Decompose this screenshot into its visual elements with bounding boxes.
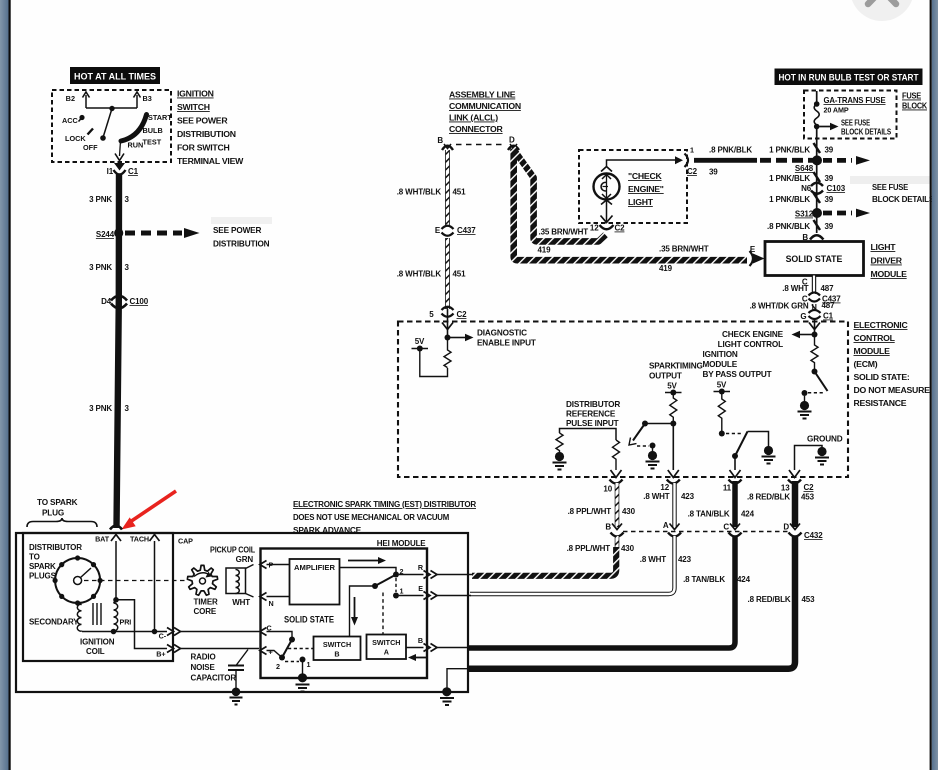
svg-text:SOLID STATE: SOLID STATE	[284, 615, 334, 625]
svg-text:39: 39	[825, 174, 834, 183]
svg-text:ASSEMBLY LINE: ASSEMBLY LINE	[449, 90, 516, 100]
svg-text:REFERENCE: REFERENCE	[566, 410, 616, 419]
svg-text:.8 PNK/BLK: .8 PNK/BLK	[767, 222, 810, 231]
svg-text:.8 RED/BLK: .8 RED/BLK	[748, 595, 791, 604]
svg-text:TO SPARK: TO SPARK	[37, 498, 78, 507]
svg-text:1: 1	[690, 146, 694, 155]
svg-text:C2: C2	[457, 310, 468, 319]
svg-text:DISTRIBUTOR: DISTRIBUTOR	[29, 543, 82, 552]
svg-text:DISTRIBUTION: DISTRIBUTION	[213, 240, 270, 249]
svg-text:CHECK ENGINE: CHECK ENGINE	[722, 330, 784, 339]
svg-text:C2: C2	[804, 483, 815, 492]
svg-text:487: 487	[821, 284, 835, 293]
svg-text:LOCK: LOCK	[65, 134, 86, 143]
svg-text:10: 10	[603, 485, 612, 494]
svg-text:RADIO: RADIO	[191, 653, 216, 662]
svg-text:.8 RED/BLK: .8 RED/BLK	[747, 493, 790, 502]
svg-text:SWITCH: SWITCH	[177, 102, 210, 112]
svg-text:TO: TO	[29, 553, 40, 562]
svg-text:MODULE: MODULE	[703, 360, 738, 369]
svg-text:ACC: ACC	[62, 116, 79, 125]
svg-text:39: 39	[709, 168, 718, 177]
svg-text:ENGINE": ENGINE"	[628, 184, 664, 194]
svg-text:GROUND: GROUND	[807, 435, 843, 444]
svg-text:TERMINAL VIEW: TERMINAL VIEW	[177, 156, 244, 166]
svg-text:419: 419	[538, 246, 552, 255]
svg-text:BLOCK DETAILS: BLOCK DETAILS	[841, 128, 892, 137]
svg-text:TIMING: TIMING	[675, 362, 703, 371]
svg-text:CAPACITOR: CAPACITOR	[191, 674, 237, 683]
svg-text:.8 PNK/BLK: .8 PNK/BLK	[709, 146, 752, 155]
svg-text:FOR SWITCH: FOR SWITCH	[177, 143, 230, 153]
svg-text:419: 419	[659, 264, 673, 273]
svg-text:N6: N6	[801, 184, 812, 193]
svg-text:11: 11	[723, 484, 732, 493]
svg-text:LIGHT: LIGHT	[871, 242, 897, 252]
svg-text:MODULE: MODULE	[854, 346, 891, 356]
svg-text:3 PNK: 3 PNK	[89, 195, 112, 204]
svg-text:RESISTANCE: RESISTANCE	[854, 398, 907, 408]
svg-text:424: 424	[741, 510, 755, 519]
svg-text:G: G	[800, 312, 806, 321]
svg-text:SEE FUSE: SEE FUSE	[872, 182, 908, 192]
svg-text:.8 WHT: .8 WHT	[640, 555, 666, 564]
svg-text:20 AMP: 20 AMP	[824, 106, 849, 115]
svg-text:HOT AT ALL TIMES: HOT AT ALL TIMES	[74, 71, 156, 82]
svg-text:SEE POWER: SEE POWER	[177, 116, 228, 126]
svg-text:SWITCH: SWITCH	[372, 638, 400, 647]
svg-text:B+: B+	[156, 650, 165, 659]
svg-text:.8 WHT: .8 WHT	[643, 492, 669, 501]
svg-text:.8 WHT/BLK: .8 WHT/BLK	[397, 188, 442, 197]
svg-text:GRN: GRN	[236, 555, 254, 564]
svg-text:ELECTRONIC SPARK TIMING (EST): ELECTRONIC SPARK TIMING (EST) DISTRIBUTO…	[293, 499, 477, 509]
svg-text:BLOCK: BLOCK	[902, 101, 928, 111]
svg-text:B: B	[418, 636, 423, 645]
svg-text:BY PASS OUTPUT: BY PASS OUTPUT	[703, 370, 772, 379]
svg-text:B2: B2	[66, 94, 75, 103]
svg-text:NOISE: NOISE	[191, 663, 216, 672]
svg-text:487: 487	[822, 301, 836, 310]
svg-text:SEE POWER: SEE POWER	[213, 226, 261, 235]
svg-text:SOLID STATE: SOLID STATE	[786, 254, 843, 264]
svg-text:1: 1	[400, 587, 404, 596]
svg-text:IGNITION: IGNITION	[177, 89, 214, 99]
svg-text:5V: 5V	[717, 381, 727, 390]
svg-text:C100: C100	[130, 297, 149, 306]
svg-text:453: 453	[802, 595, 816, 604]
svg-text:39: 39	[825, 195, 834, 204]
svg-text:C-: C-	[159, 632, 167, 641]
svg-text:IGNITION: IGNITION	[80, 638, 115, 647]
svg-text:LIGHT: LIGHT	[628, 197, 654, 207]
svg-text:OUTPUT: OUTPUT	[649, 372, 682, 381]
svg-text:S244: S244	[96, 230, 115, 239]
svg-text:CAP: CAP	[178, 537, 193, 546]
svg-text:39: 39	[825, 146, 834, 155]
svg-text:N: N	[269, 599, 274, 608]
svg-text:2: 2	[276, 662, 280, 671]
svg-text:CONTROL: CONTROL	[854, 333, 896, 343]
svg-text:COMMUNICATION: COMMUNICATION	[449, 101, 521, 111]
svg-text:.35 BRN/WHT: .35 BRN/WHT	[539, 228, 589, 237]
svg-text:I1: I1	[107, 167, 114, 176]
svg-text:PULSE INPUT: PULSE INPUT	[566, 419, 619, 428]
svg-text:E: E	[418, 584, 423, 593]
svg-text:PLUG: PLUG	[42, 509, 64, 518]
svg-text:DRIVER: DRIVER	[871, 256, 903, 266]
svg-text:DISTRIBUTION: DISTRIBUTION	[177, 129, 236, 139]
svg-text:C432: C432	[804, 531, 823, 540]
svg-text:START: START	[148, 113, 172, 122]
svg-text:.35 BRN/WHT: .35 BRN/WHT	[659, 245, 709, 254]
svg-text:WHT: WHT	[232, 598, 250, 607]
svg-text:12: 12	[660, 483, 669, 492]
svg-text:5: 5	[429, 310, 434, 319]
svg-text:LINK (ALCL): LINK (ALCL)	[449, 113, 498, 123]
svg-text:PICKUP COIL: PICKUP COIL	[210, 546, 255, 555]
svg-text:430: 430	[621, 544, 635, 553]
svg-text:D: D	[783, 523, 789, 532]
svg-text:1 PNK/BLK: 1 PNK/BLK	[769, 195, 810, 204]
svg-text:E: E	[435, 226, 441, 235]
svg-text:.8 WHT: .8 WHT	[782, 284, 808, 293]
svg-text:1 PNK/BLK: 1 PNK/BLK	[769, 174, 810, 183]
svg-text:A: A	[663, 521, 669, 530]
svg-text:LIGHT CONTROL: LIGHT CONTROL	[718, 340, 784, 349]
svg-text:3: 3	[125, 263, 130, 272]
svg-text:AMPLIFIER: AMPLIFIER	[294, 563, 335, 572]
svg-text:C437: C437	[457, 226, 476, 235]
svg-text:B: B	[605, 523, 611, 532]
svg-text:3: 3	[125, 404, 130, 413]
svg-text:3: 3	[125, 195, 130, 204]
svg-text:.8 PPL/WHT: .8 PPL/WHT	[567, 544, 611, 553]
svg-text:ELECTRONIC: ELECTRONIC	[854, 320, 909, 330]
svg-text:COIL: COIL	[86, 647, 105, 656]
svg-text:5V: 5V	[415, 337, 425, 346]
svg-text:451: 451	[453, 270, 467, 279]
svg-text:S312: S312	[795, 210, 814, 219]
svg-text:423: 423	[681, 492, 695, 501]
svg-text:D: D	[509, 136, 515, 145]
svg-text:DIAGNOSTIC: DIAGNOSTIC	[477, 329, 527, 338]
svg-text:.8 WHT/DK GRN: .8 WHT/DK GRN	[750, 302, 809, 311]
svg-text:DISTRIBUTOR: DISTRIBUTOR	[566, 400, 620, 409]
svg-text:CORE: CORE	[194, 607, 217, 616]
svg-text:5V: 5V	[667, 382, 677, 391]
svg-text:B3: B3	[143, 94, 152, 103]
svg-text:12: 12	[590, 224, 599, 233]
svg-text:ENABLE INPUT: ENABLE INPUT	[477, 339, 536, 348]
svg-text:SOLID STATE:: SOLID STATE:	[854, 372, 910, 382]
svg-text:DO NOT MEASURE: DO NOT MEASURE	[854, 385, 931, 395]
svg-text:39: 39	[825, 222, 834, 231]
svg-text:.8 WHT/BLK: .8 WHT/BLK	[397, 270, 442, 279]
svg-text:TIMER: TIMER	[194, 598, 219, 607]
svg-text:423: 423	[678, 555, 692, 564]
svg-text:PRI: PRI	[120, 618, 132, 627]
svg-text:SPARK: SPARK	[649, 362, 677, 371]
svg-text:C: C	[723, 523, 729, 532]
svg-text:PLUGS: PLUGS	[29, 572, 57, 581]
svg-text:C2: C2	[615, 224, 626, 233]
svg-text:SPARK: SPARK	[29, 562, 56, 571]
svg-text:.8 TAN/BLK: .8 TAN/BLK	[683, 575, 725, 584]
svg-text:TACH: TACH	[130, 535, 149, 544]
svg-text:A: A	[384, 648, 389, 657]
svg-text:13: 13	[781, 484, 790, 493]
svg-text:1 PNK/BLK: 1 PNK/BLK	[769, 146, 810, 155]
svg-text:C2: C2	[687, 167, 698, 176]
svg-text:C103: C103	[827, 184, 846, 193]
svg-text:CONNECTOR: CONNECTOR	[449, 124, 504, 134]
svg-text:+: +	[269, 648, 273, 657]
svg-text:RUN: RUN	[128, 141, 144, 150]
svg-text:DOES NOT USE MECHANICAL OR VAC: DOES NOT USE MECHANICAL OR VACUUM	[293, 512, 449, 522]
svg-text:FUSE: FUSE	[902, 91, 921, 101]
svg-text:"CHECK: "CHECK	[628, 171, 662, 181]
svg-text:3 PNK: 3 PNK	[89, 404, 112, 413]
svg-text:MODULE: MODULE	[871, 269, 908, 279]
svg-text:SEE FUSE: SEE FUSE	[841, 119, 871, 128]
svg-text:3 PNK: 3 PNK	[89, 263, 112, 272]
svg-text:BULB: BULB	[143, 126, 163, 135]
svg-text:.8 TAN/BLK: .8 TAN/BLK	[688, 510, 730, 519]
svg-text:B: B	[334, 650, 339, 659]
svg-text:BAT: BAT	[95, 535, 110, 544]
svg-text:TEST: TEST	[143, 138, 162, 147]
svg-text:C1: C1	[128, 167, 139, 176]
svg-text:HOT IN RUN BULB TEST OR START: HOT IN RUN BULB TEST OR START	[779, 73, 919, 83]
svg-text:453: 453	[801, 493, 815, 502]
svg-text:430: 430	[622, 507, 636, 516]
svg-text:SECONDARY: SECONDARY	[29, 618, 79, 627]
svg-text:IGNITION: IGNITION	[703, 350, 738, 359]
svg-text:(ECM): (ECM)	[854, 359, 878, 369]
svg-text:D4: D4	[101, 297, 112, 306]
svg-text:HEI MODULE: HEI MODULE	[377, 539, 427, 548]
svg-text:424: 424	[737, 575, 751, 584]
svg-text:B: B	[437, 136, 443, 145]
svg-text:SWITCH: SWITCH	[323, 640, 351, 649]
svg-text:GA-TRANS FUSE: GA-TRANS FUSE	[824, 96, 887, 105]
svg-text:OFF: OFF	[83, 143, 98, 152]
svg-text:.8 PPL/WHT: .8 PPL/WHT	[568, 507, 612, 516]
svg-text:1: 1	[307, 660, 311, 669]
svg-text:451: 451	[453, 188, 467, 197]
svg-text:BLOCK DETAILS: BLOCK DETAILS	[872, 194, 934, 204]
svg-text:S648: S648	[795, 164, 814, 173]
svg-text:C1: C1	[823, 312, 834, 321]
